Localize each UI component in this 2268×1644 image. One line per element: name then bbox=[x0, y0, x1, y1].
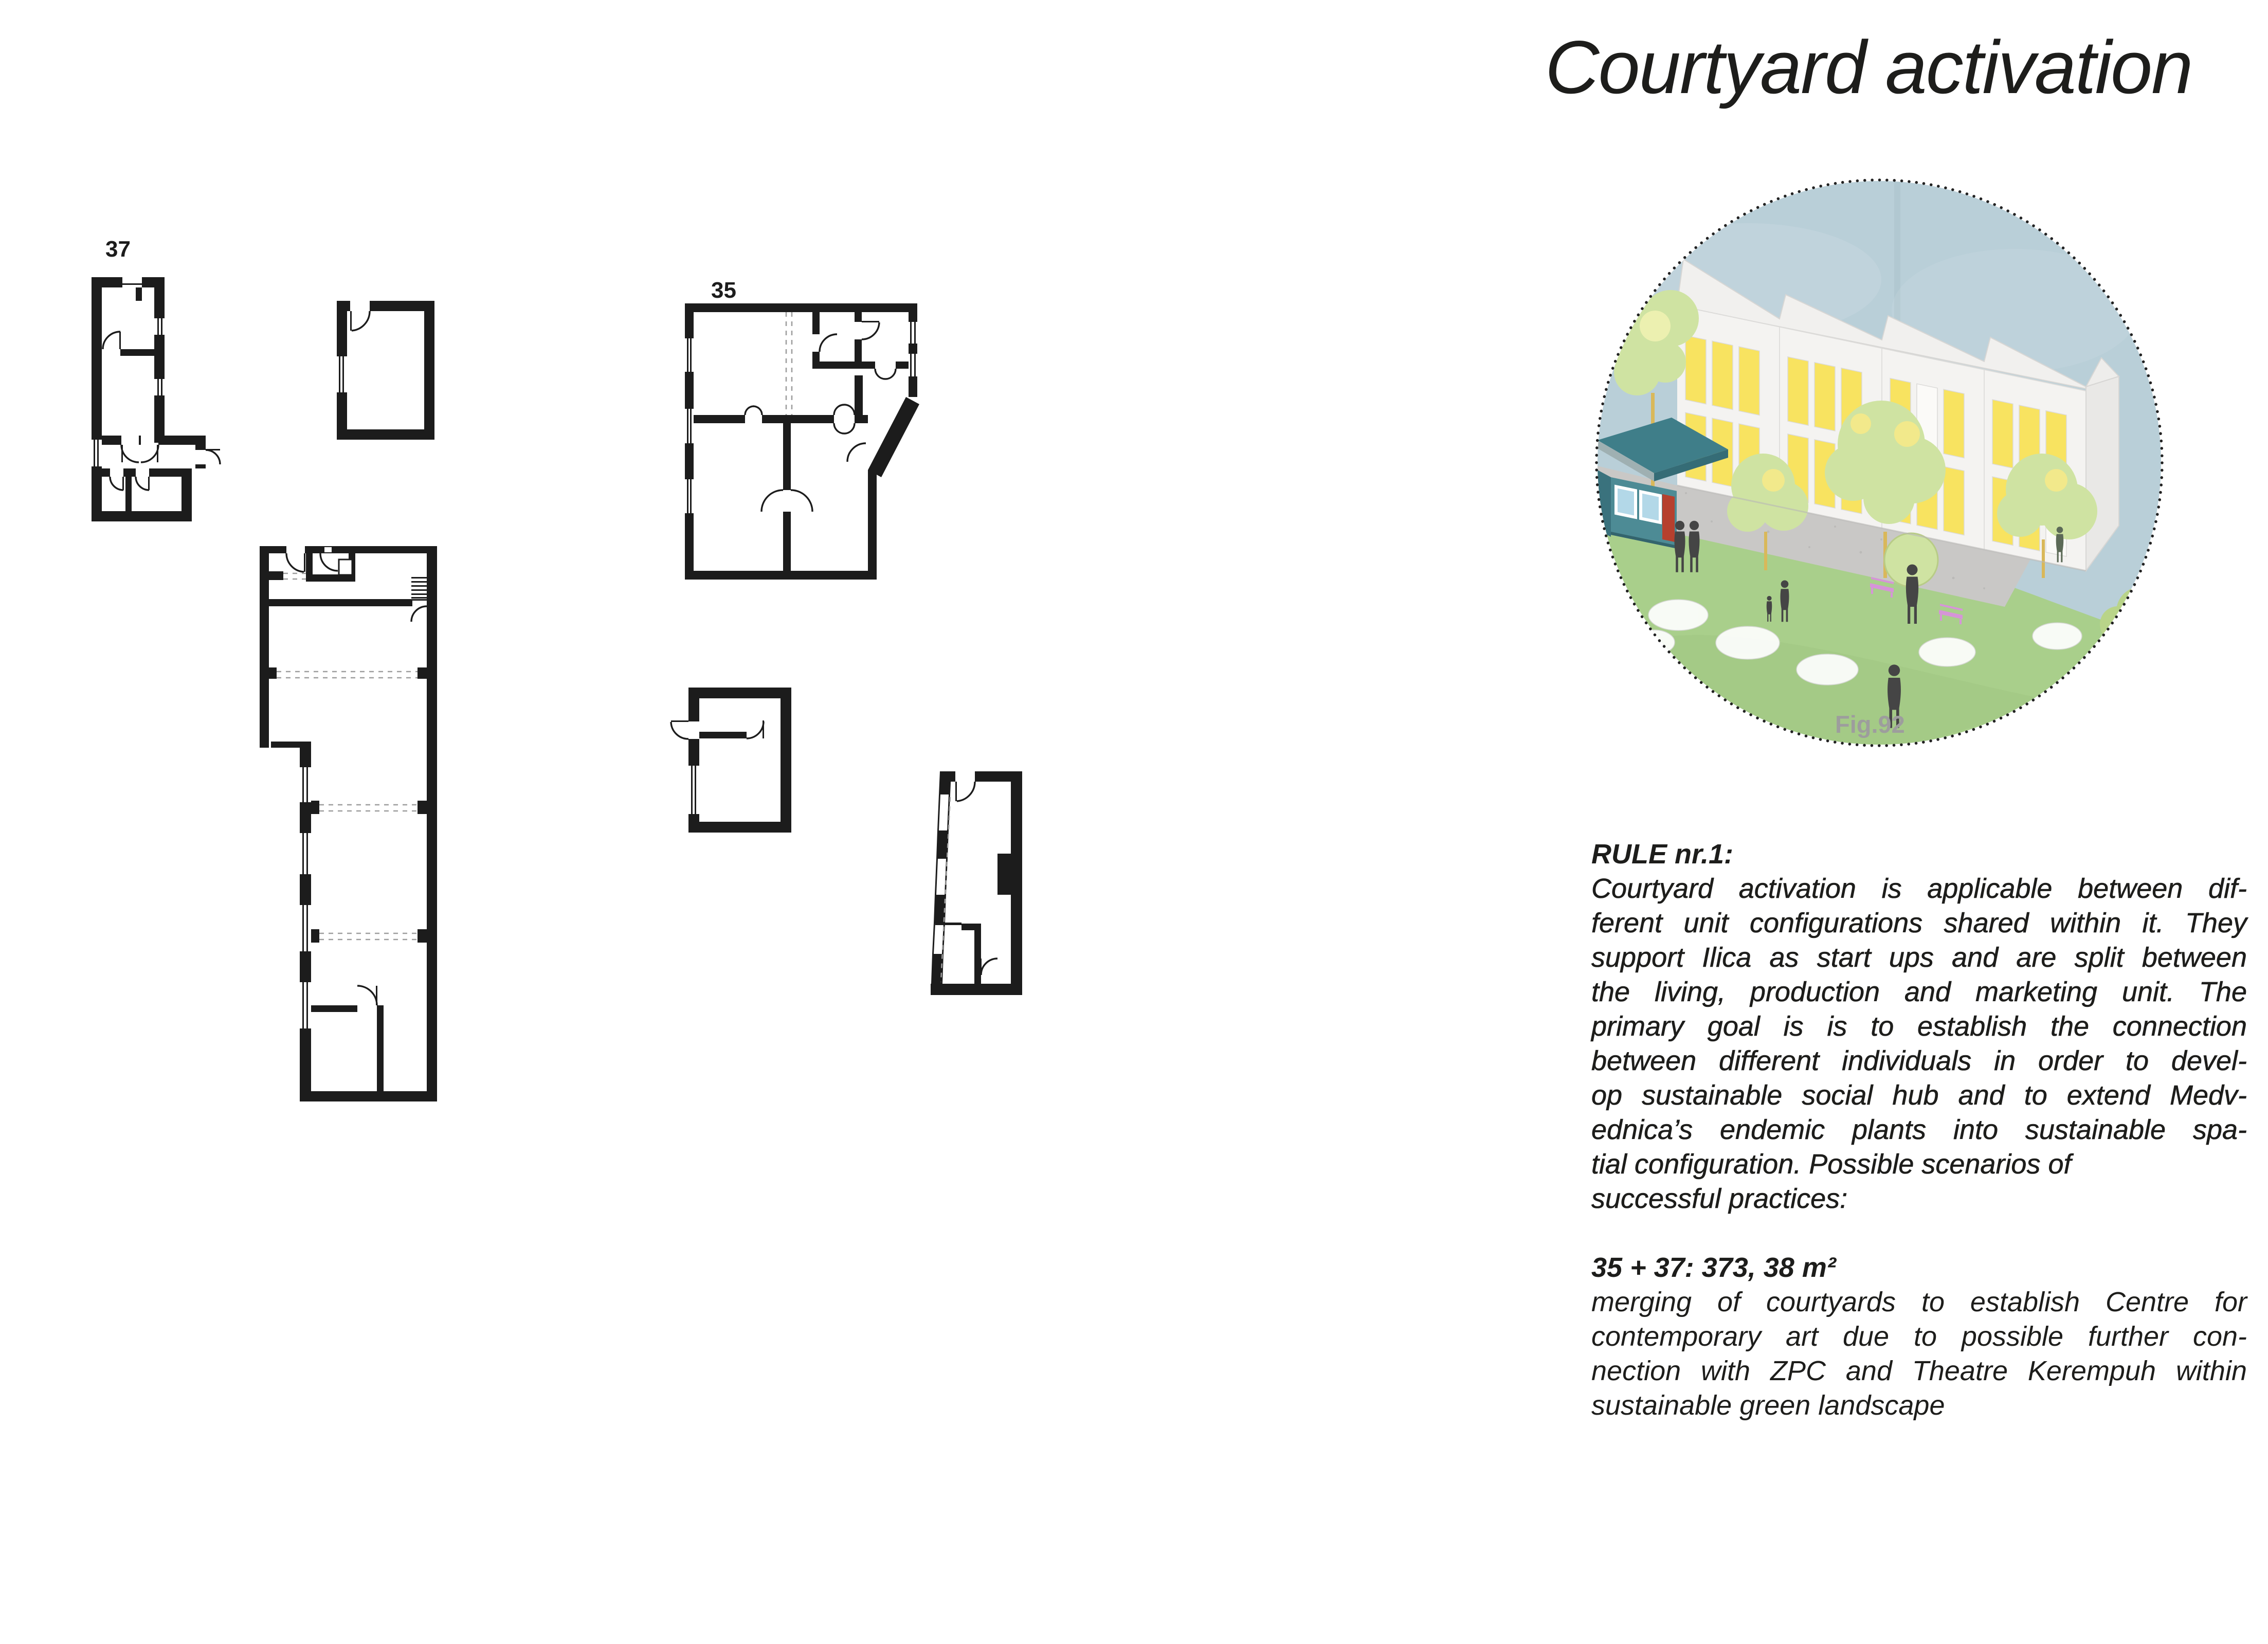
text-line: successful practices: bbox=[1591, 1182, 2247, 1216]
paragraph-spacer bbox=[1591, 1216, 2247, 1251]
floor-plan-small-room-b bbox=[668, 688, 791, 833]
text-line: primary goal is is to establish the conn… bbox=[1591, 1009, 2247, 1044]
text-line: nection with ZPC and Theatre Kerempuh wi… bbox=[1591, 1354, 2247, 1388]
text-line: tial configuration. Possible scenarios o… bbox=[1591, 1147, 2247, 1182]
text-line: merging of courtyards to establish Centr… bbox=[1591, 1285, 2247, 1320]
floor-plan-35 bbox=[685, 303, 929, 580]
figure-circle bbox=[1593, 177, 2165, 749]
text-line: the living, production and marketing uni… bbox=[1591, 975, 2247, 1009]
rule-body: Courtyard activation is applicable betwe… bbox=[1591, 872, 2247, 1216]
figure-caption: Fig.92 bbox=[1835, 712, 1905, 736]
text-line: sustainable green landscape bbox=[1591, 1388, 2247, 1423]
floor-plan-small-room-a bbox=[337, 301, 434, 440]
rule-heading: RULE nr.1: bbox=[1591, 837, 2247, 872]
text-line: ferent unit configurations shared within… bbox=[1591, 906, 2247, 941]
text-line: between different individuals in order t… bbox=[1591, 1044, 2247, 1078]
text-line: Courtyard activation is applicable betwe… bbox=[1591, 872, 2247, 906]
rule-description: merging of courtyards to establish Centr… bbox=[1591, 1285, 2247, 1423]
plan-label-37: 37 bbox=[105, 238, 131, 261]
figure-illustration bbox=[1593, 177, 2165, 749]
floor-plan-large bbox=[260, 545, 437, 1101]
text-line: ednica’s endemic plants into sustainable… bbox=[1591, 1113, 2247, 1147]
area-line: 35 + 37: 373, 38 m² bbox=[1591, 1251, 2247, 1285]
floor-plan-37 bbox=[92, 277, 225, 521]
page: { "title": "Courtyard activation", "plan… bbox=[0, 0, 2268, 1644]
text-line: contemporary art due to possible further… bbox=[1591, 1320, 2247, 1354]
text-line: op sustainable social hub and to extend … bbox=[1591, 1078, 2247, 1113]
text-line: support Ilica as start ups and are split… bbox=[1591, 941, 2247, 975]
plan-label-35: 35 bbox=[711, 279, 736, 302]
floor-plan-narrow bbox=[930, 771, 1023, 995]
page-title: Courtyard activation bbox=[1545, 28, 2265, 106]
rule-block: RULE nr.1: Courtyard activation is appli… bbox=[1591, 837, 2247, 1423]
